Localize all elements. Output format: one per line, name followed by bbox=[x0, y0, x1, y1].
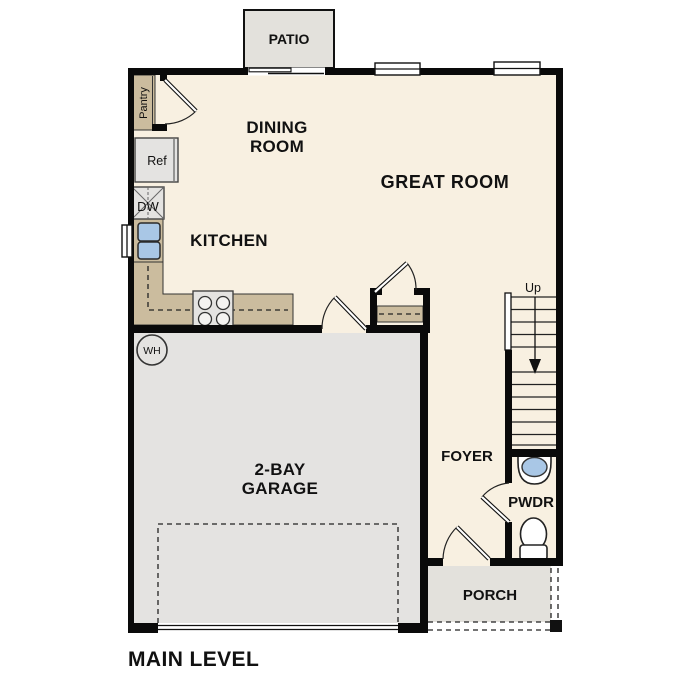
stove bbox=[193, 291, 233, 327]
wall-closet-right bbox=[423, 288, 430, 333]
kitchen-label: KITCHEN bbox=[190, 231, 268, 250]
pwdr-label: PWDR bbox=[508, 494, 554, 511]
wall-foyer-bottom-right bbox=[490, 558, 563, 566]
sink-bowl bbox=[522, 458, 547, 477]
great-room-label: GREAT ROOM bbox=[381, 172, 510, 192]
wall-pantry-stub-bottom bbox=[152, 124, 167, 131]
kitchen-sink bbox=[138, 223, 160, 259]
window-icon bbox=[375, 63, 420, 75]
porch-post bbox=[550, 620, 562, 632]
foyer-label: FOYER bbox=[441, 448, 493, 465]
patio-label: PATIO bbox=[269, 31, 310, 47]
wall-pwdr-west-lower bbox=[505, 522, 512, 566]
garage-door bbox=[158, 623, 398, 633]
sink-basin bbox=[138, 223, 160, 241]
wall-foyer-bottom-left bbox=[420, 558, 443, 566]
main-level-title: MAIN LEVEL bbox=[128, 648, 259, 671]
porch-label: PORCH bbox=[463, 587, 517, 604]
wall-garage-top-left bbox=[128, 325, 322, 333]
window-icon bbox=[122, 225, 132, 257]
pantry-label: Pantry bbox=[138, 87, 150, 119]
toilet-tank bbox=[520, 545, 547, 560]
garage-label-line1: 2-BAY bbox=[255, 460, 306, 479]
wall-stair-pwdr-divider bbox=[505, 449, 563, 457]
toilet bbox=[520, 518, 547, 560]
stairs-up-label: Up bbox=[525, 281, 541, 295]
stair-railing bbox=[505, 293, 511, 350]
garage-label-line2: GARAGE bbox=[242, 479, 318, 498]
wall-right bbox=[556, 68, 563, 566]
burner bbox=[199, 313, 212, 326]
wall-left bbox=[128, 68, 134, 633]
burner bbox=[217, 297, 230, 310]
burner bbox=[217, 313, 230, 326]
ref-label: Ref bbox=[147, 154, 167, 168]
pedestal-sink bbox=[518, 453, 551, 484]
sink-basin bbox=[138, 242, 160, 259]
burner bbox=[199, 297, 212, 310]
wall-under-stairs bbox=[505, 350, 512, 449]
sliding-patio-door bbox=[248, 68, 325, 76]
window-icon bbox=[494, 62, 540, 75]
dining-room-label-line2: ROOM bbox=[250, 137, 304, 156]
wall-pwdr-west-upper bbox=[505, 457, 512, 483]
dining-room-label-line1: DINING bbox=[246, 118, 307, 137]
wall-garage-bottom-left bbox=[128, 623, 158, 633]
water-heater: WH bbox=[137, 335, 167, 365]
wall-garage-bottom-right bbox=[398, 623, 428, 633]
wall-garage-right bbox=[420, 333, 428, 623]
wh-label: WH bbox=[143, 345, 161, 357]
floor-plan: WH bbox=[0, 0, 687, 687]
dw-label: DW bbox=[137, 199, 159, 214]
